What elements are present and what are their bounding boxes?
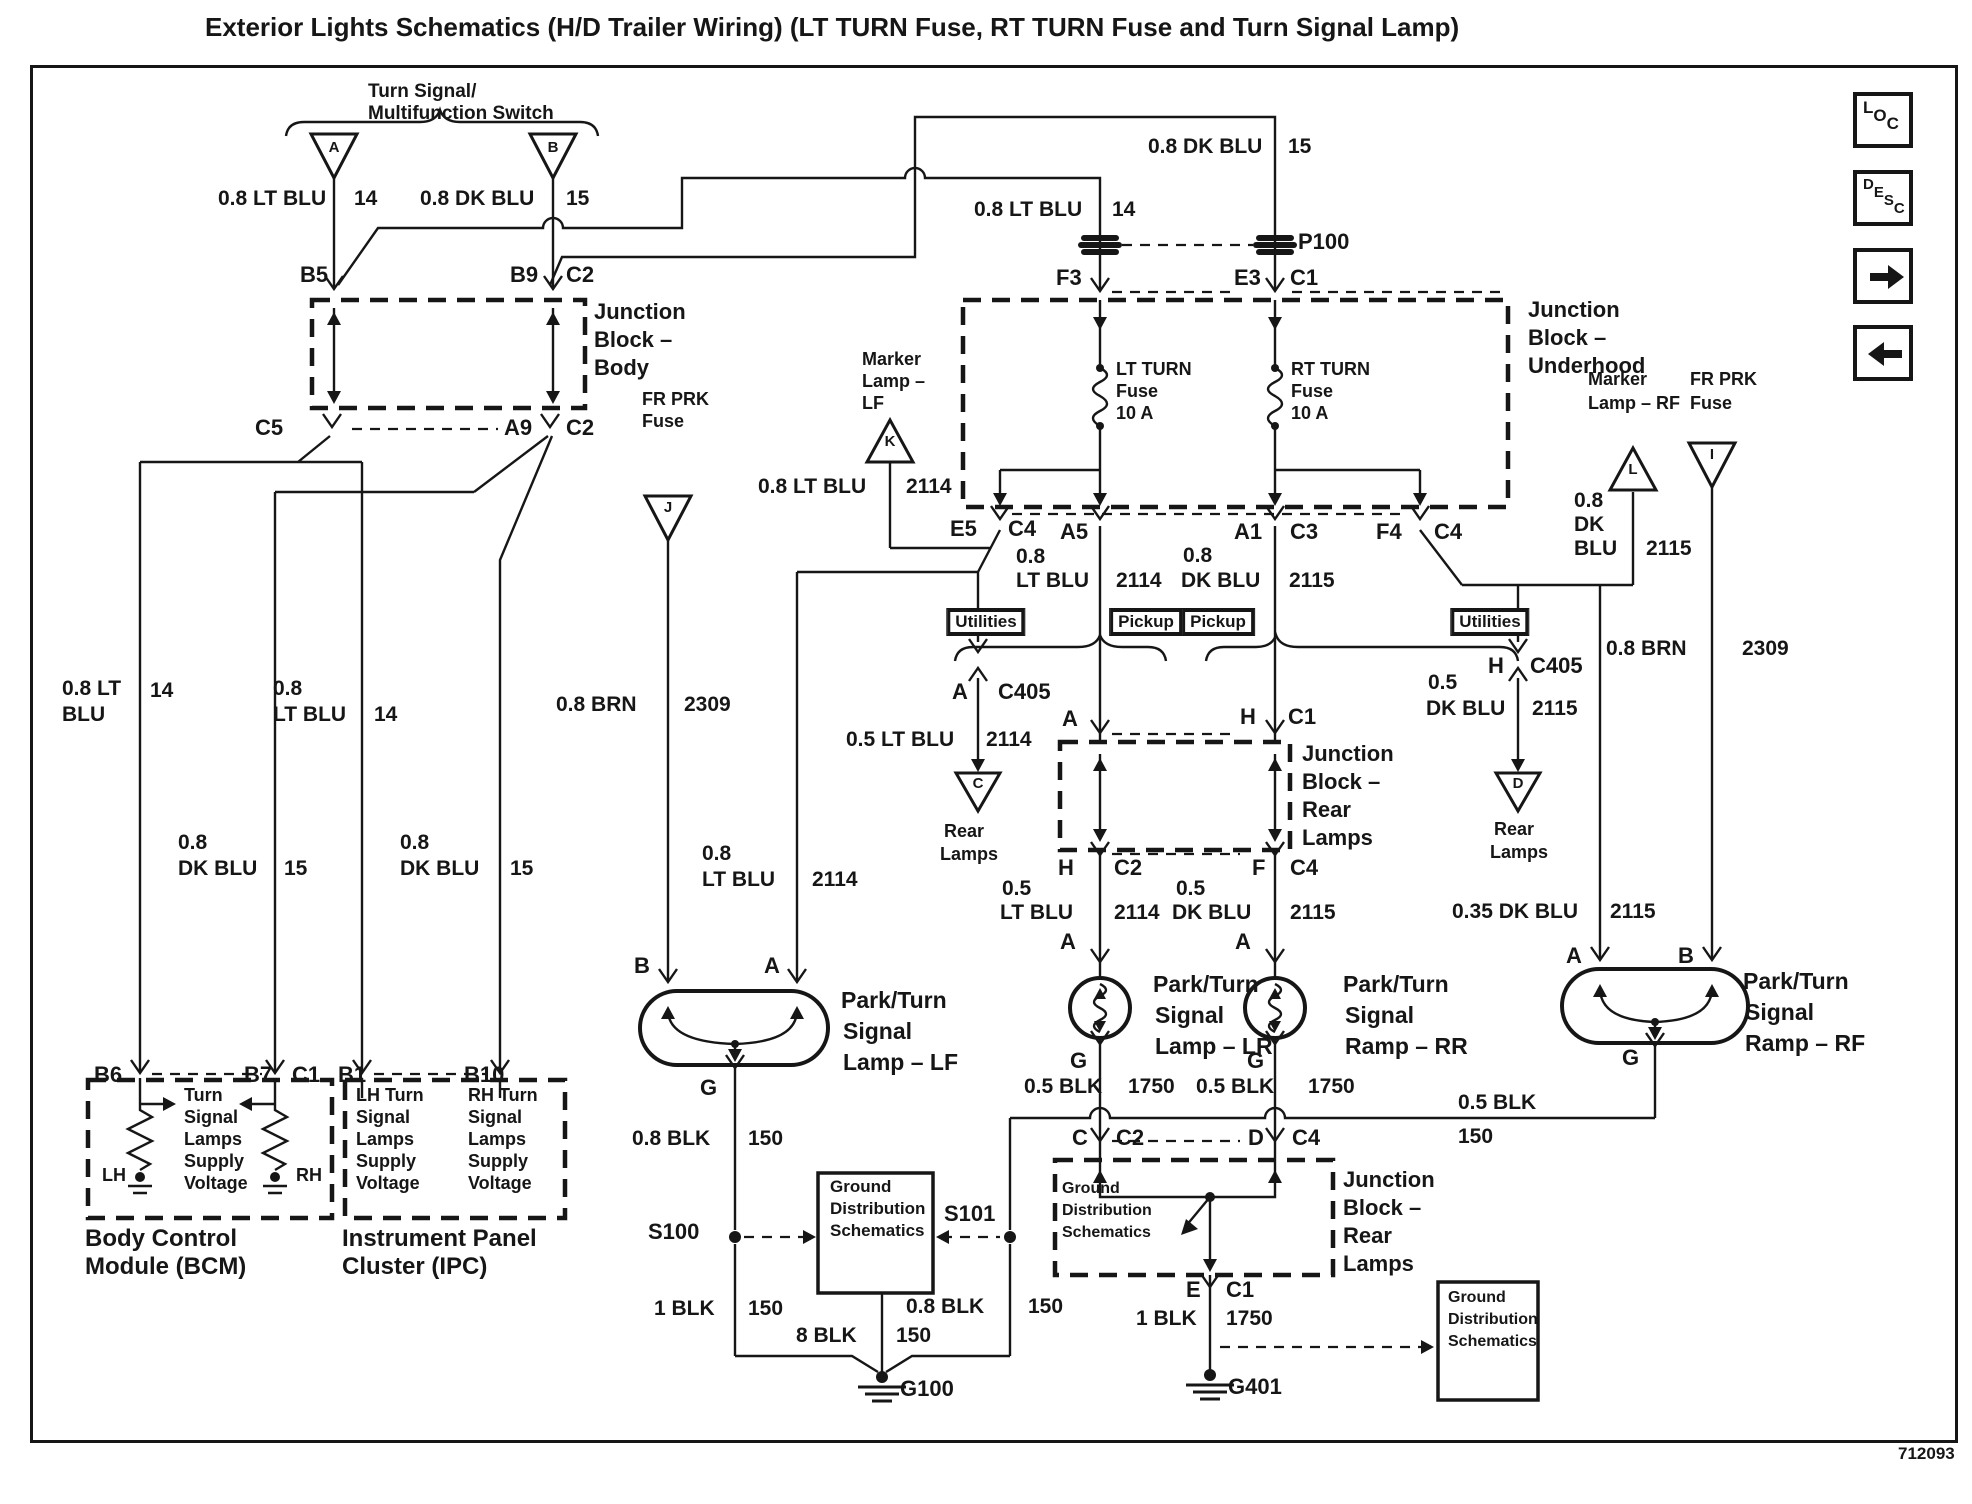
diagram-label: A: [1060, 930, 1076, 953]
diagram-label: 0.5: [1428, 672, 1457, 694]
diagram-label: J: [664, 500, 672, 516]
diagram-label: E5: [950, 517, 977, 540]
diagram-label: 8 BLK: [796, 1325, 857, 1347]
diagram-label: 2115: [1289, 570, 1335, 592]
junction-block-rear-lamps-box: [1060, 742, 1290, 850]
diagram-label: Schematics: [1062, 1225, 1151, 1242]
diagram-label: 150: [748, 1128, 783, 1150]
diagram-label: Schematics: [830, 1222, 925, 1240]
diagram-label: H: [1058, 856, 1074, 879]
diagram-label: Multifunction Switch: [368, 104, 554, 124]
diagram-label: Fuse: [1116, 382, 1158, 401]
diagram-label: E: [1186, 1278, 1201, 1301]
diagram-label: LT BLU: [1016, 570, 1089, 592]
diagram-label: RH: [296, 1166, 322, 1185]
diagram-label: Lamps: [356, 1130, 414, 1149]
diagram-label: Schematics: [1448, 1334, 1537, 1351]
diagram-label: 10 A: [1291, 404, 1328, 423]
diagram-label: Junction: [1528, 298, 1620, 321]
harness-variant-tag: Utilities: [947, 609, 1024, 635]
diagram-label: F: [1252, 856, 1265, 879]
diagram-label: 2309: [1742, 638, 1789, 660]
desc-button[interactable]: DESC: [1853, 170, 1913, 226]
diagram-label: E3: [1234, 266, 1261, 289]
harness-variant-tag: Pickup: [1182, 609, 1254, 635]
diagram-label: Park/Turn: [841, 988, 947, 1012]
diagram-label: Block –: [1302, 770, 1380, 793]
diagram-label: B7: [244, 1063, 272, 1086]
diagram-label: G: [1070, 1049, 1087, 1072]
diagram-label: Fuse: [642, 412, 684, 431]
diagram-label: Park/Turn: [1743, 969, 1849, 993]
diagram-label: C1: [1288, 705, 1316, 728]
diagram-label: B1: [338, 1063, 366, 1086]
diagram-label: D: [1248, 1126, 1264, 1149]
diagram-label: C4: [1290, 856, 1318, 879]
diagram-label: C4: [1292, 1126, 1320, 1149]
diagram-label: A: [1566, 944, 1582, 967]
diagram-label: FR PRK: [1690, 370, 1757, 389]
diagram-label: Ground: [1448, 1290, 1506, 1307]
diagram-label: Fuse: [1690, 394, 1732, 413]
diagram-label: 0.8 BLK: [906, 1296, 984, 1318]
diagram-label: Signal: [1745, 1000, 1814, 1024]
diagram-label: 15: [1288, 136, 1311, 158]
diagram-label: Lamps: [940, 845, 998, 864]
schematic-page: Exterior Lights Schematics (H/D Trailer …: [0, 0, 1972, 1504]
diagram-label: B: [548, 140, 559, 156]
diagram-label: Block –: [1528, 326, 1606, 349]
connector-triangles: [311, 134, 1735, 811]
diagram-label: 14: [1112, 199, 1135, 221]
diagram-label: G: [1247, 1049, 1264, 1072]
diagram-label: LT TURN: [1116, 360, 1192, 379]
diagram-label: 0.8 LT BLU: [218, 188, 326, 210]
diagram-label: H: [1240, 705, 1256, 728]
diagram-label: C405: [1530, 654, 1583, 677]
diagram-label: 2114: [906, 476, 952, 498]
diagram-label: C2: [566, 416, 594, 439]
diagram-label: A5: [1060, 520, 1088, 543]
diagram-label: Junction: [1343, 1168, 1435, 1191]
diagram-label: L: [1628, 462, 1637, 478]
diagram-label: 0.8 DK BLU: [420, 188, 534, 210]
diagram-label: 0.5 BLK: [1458, 1092, 1536, 1114]
diagram-label: B: [634, 954, 650, 977]
diagram-label: 2114: [812, 869, 858, 891]
diagram-label: Park/Turn: [1153, 972, 1259, 996]
diagram-label: C2: [566, 263, 594, 286]
diagram-label: 0.8: [400, 832, 429, 854]
diagram-label: Junction: [594, 300, 686, 323]
diagram-label: 0.5: [1002, 878, 1031, 900]
diagram-label: 150: [1028, 1296, 1063, 1318]
harness-variant-tag: Utilities: [1451, 609, 1528, 635]
diagram-label: Ramp – RF: [1745, 1031, 1865, 1055]
diagram-label: Marker: [1588, 370, 1647, 389]
diagram-label: Voltage: [468, 1174, 532, 1193]
diagram-label: LT BLU: [273, 704, 346, 726]
diagram-label: B10: [464, 1063, 504, 1086]
diagram-label: A: [329, 140, 340, 156]
diagram-label: BLU: [62, 704, 105, 726]
diagram-label: 1750: [1226, 1308, 1273, 1330]
diagram-label: 15: [510, 858, 533, 880]
diagram-label: Block –: [594, 328, 672, 351]
diagram-label: H: [1488, 654, 1504, 677]
harness-variant-tag: Pickup: [1110, 609, 1182, 635]
diagram-label: 150: [896, 1325, 931, 1347]
diagram-label: Marker: [862, 350, 921, 369]
diagram-label: Body Control: [85, 1226, 237, 1251]
diagram-label: Cluster (IPC): [342, 1254, 487, 1279]
diagram-label: 0.8 DK BLU: [1148, 136, 1262, 158]
diagram-label: 1 BLK: [1136, 1308, 1197, 1330]
diagram-label: 2114: [1114, 902, 1160, 924]
diagram-label: 1750: [1128, 1076, 1175, 1098]
diagram-label: Signal: [1155, 1003, 1224, 1027]
diagram-label: 0.8: [273, 678, 302, 700]
diagram-label: S101: [944, 1202, 995, 1225]
wiring-diagram: [0, 0, 1972, 1504]
diagram-label: Ramp – RR: [1345, 1034, 1468, 1058]
diagram-label: Rear: [944, 822, 984, 841]
diagram-label: Voltage: [356, 1174, 420, 1193]
diagram-label: C2: [1116, 1126, 1144, 1149]
diagram-label: Block –: [1343, 1196, 1421, 1219]
diagram-label: 2115: [1646, 538, 1692, 560]
diagram-label: 0.5: [1176, 878, 1205, 900]
diagram-label: 0.8 BRN: [556, 694, 637, 716]
junction-block-underhood-box: [963, 300, 1508, 507]
arrowheads: [163, 312, 1719, 1354]
diagram-label: 150: [1458, 1126, 1493, 1148]
diagram-label: 15: [284, 858, 307, 880]
diagram-label: Supply: [468, 1152, 528, 1171]
diagram-label: 0.5 LT BLU: [846, 729, 954, 751]
diagram-label: C405: [998, 680, 1051, 703]
diagram-label: 0.8 BLK: [632, 1128, 710, 1150]
ground-g100: [876, 1371, 888, 1383]
previous-page-button[interactable]: [1853, 325, 1913, 381]
diagram-label: C2: [1114, 856, 1142, 879]
diagram-label: D: [1513, 776, 1524, 792]
diagram-label: G: [700, 1076, 717, 1099]
diagram-label: 0.8: [1016, 546, 1045, 568]
diagram-label: G401: [1228, 1375, 1282, 1398]
diagram-label: LT BLU: [1000, 902, 1073, 924]
diagram-label: Body: [594, 356, 649, 379]
diagram-label: 0.8: [1183, 545, 1212, 567]
diagram-label: 0.8: [1574, 490, 1603, 512]
diagram-label: Signal: [1345, 1003, 1414, 1027]
diagram-label: Lamps: [1343, 1252, 1414, 1275]
diagram-label: Module (BCM): [85, 1254, 246, 1279]
p100-grommets: [1078, 235, 1297, 255]
diagram-label: 1750: [1308, 1076, 1355, 1098]
diagram-label: 2114: [1116, 570, 1162, 592]
diagram-label: LF: [862, 394, 884, 413]
diagram-label: 2114: [986, 729, 1032, 751]
diagram-label: Rear: [1343, 1224, 1392, 1247]
diagram-label: C: [973, 776, 984, 792]
diagram-label: LH Turn: [356, 1086, 424, 1105]
diagram-label: Ground: [1062, 1181, 1120, 1198]
diagram-label: Turn: [184, 1086, 223, 1105]
diagram-label: S100: [648, 1220, 699, 1243]
diagram-label: C1: [1226, 1278, 1254, 1301]
splice-s100: [729, 1231, 741, 1243]
diagram-label: 150: [748, 1298, 783, 1320]
diagram-label: Lamps: [468, 1130, 526, 1149]
diagram-label: 0.5 BLK: [1196, 1076, 1274, 1098]
diagram-label: DK BLU: [1172, 902, 1251, 924]
diagram-label: Instrument Panel: [342, 1226, 537, 1251]
diagram-label: RH Turn: [468, 1086, 538, 1105]
diagram-label: LT BLU: [702, 869, 775, 891]
diagram-label: Lamp –: [862, 372, 925, 391]
diagram-label: Signal: [468, 1108, 522, 1127]
diagram-label: BLU: [1574, 538, 1617, 560]
diagram-label: Junction: [1302, 742, 1394, 765]
diagram-label: G: [1622, 1046, 1639, 1069]
diagram-label: LH: [102, 1166, 126, 1185]
splice-s101: [1004, 1231, 1016, 1243]
diagram-label: K: [885, 434, 896, 450]
diagram-label: A: [1062, 707, 1078, 730]
diagram-label: 2115: [1290, 902, 1336, 924]
diagram-label: Rear: [1302, 798, 1351, 821]
diagram-label: 10 A: [1116, 404, 1153, 423]
diagram-label: G100: [900, 1377, 954, 1400]
diagram-label: I: [1710, 447, 1714, 463]
diagram-label: C1: [1290, 266, 1318, 289]
diagram-label: 0.8 BRN: [1606, 638, 1687, 660]
diagram-label: 15: [566, 188, 589, 210]
diagram-label: Lamp – RF: [1588, 394, 1680, 413]
diagram-label: C3: [1290, 520, 1318, 543]
ground-g401: [1204, 1369, 1216, 1381]
diagram-label: A1: [1234, 520, 1262, 543]
diagram-label: 0.8: [178, 832, 207, 854]
diagram-label: Supply: [356, 1152, 416, 1171]
diagram-label: Fuse: [1291, 382, 1333, 401]
diagram-label: Signal: [843, 1019, 912, 1043]
diagram-label: A: [764, 954, 780, 977]
diagram-label: 0.8: [702, 843, 731, 865]
diagram-label: Voltage: [184, 1174, 248, 1193]
diagram-label: F4: [1376, 520, 1402, 543]
diagram-label: B6: [94, 1063, 122, 1086]
diagram-label: 2115: [1610, 901, 1656, 923]
diagram-label: C5: [255, 416, 283, 439]
diagram-label: DK BLU: [400, 858, 479, 880]
diagram-label: Rear: [1494, 820, 1534, 839]
diagram-label: A: [1235, 930, 1251, 953]
diagram-label: Turn Signal/: [368, 82, 476, 102]
diagram-label: Lamps: [1302, 826, 1373, 849]
diagram-label: C: [1072, 1126, 1088, 1149]
diagram-label: C4: [1434, 520, 1462, 543]
diagram-label: 14: [354, 188, 377, 210]
diagram-label: F3: [1056, 266, 1082, 289]
diagram-label: 0.5 BLK: [1024, 1076, 1102, 1098]
diagram-label: Distribution: [830, 1200, 925, 1218]
diagram-label: 0.8 LT BLU: [758, 476, 866, 498]
diagram-label: FR PRK: [642, 390, 709, 409]
diagram-label: B9: [510, 263, 538, 286]
diagram-label: 14: [150, 680, 173, 702]
diagram-label: 2309: [684, 694, 731, 716]
diagram-label: Supply: [184, 1152, 244, 1171]
diagram-label: DK BLU: [1181, 570, 1260, 592]
next-page-button[interactable]: [1853, 248, 1913, 304]
diagram-label: C4: [1008, 517, 1036, 540]
loc-button[interactable]: LOC: [1853, 92, 1913, 148]
diagram-label: Signal: [184, 1108, 238, 1127]
diagram-label: 14: [374, 704, 397, 726]
diagram-label: A: [952, 680, 968, 703]
diagram-label: Distribution: [1448, 1312, 1538, 1329]
diagram-label: C1: [292, 1063, 320, 1086]
diagram-label: P100: [1298, 230, 1349, 253]
part-number: 712093: [1898, 1444, 1955, 1464]
junction-block-body-box: [312, 300, 585, 408]
diagram-label: DK BLU: [178, 858, 257, 880]
diagram-label: 0.8 LT BLU: [974, 199, 1082, 221]
reference-boxes: [818, 1173, 1538, 1400]
diagram-label: 2115: [1532, 698, 1578, 720]
diagram-label: DK: [1574, 514, 1604, 536]
diagram-label: Lamps: [1490, 843, 1548, 862]
diagram-label: A9: [504, 416, 532, 439]
diagram-label: Signal: [356, 1108, 410, 1127]
diagram-label: 0.8 LT: [62, 678, 121, 700]
diagram-label: RT TURN: [1291, 360, 1370, 379]
diagram-label: Park/Turn: [1343, 972, 1449, 996]
diagram-label: DK BLU: [1426, 698, 1505, 720]
diagram-label: Lamps: [184, 1130, 242, 1149]
diagram-label: Lamp – LF: [843, 1050, 958, 1074]
diagram-label: 0.35 DK BLU: [1452, 901, 1578, 923]
left-arrow-icon: [1864, 332, 1908, 376]
diagram-label: 1 BLK: [654, 1298, 715, 1320]
diagram-label: Distribution: [1062, 1203, 1152, 1220]
diagram-label: B5: [300, 263, 328, 286]
diagram-label: Ground: [830, 1178, 891, 1196]
right-arrow-icon: [1864, 255, 1908, 299]
diagram-label: B: [1678, 944, 1694, 967]
